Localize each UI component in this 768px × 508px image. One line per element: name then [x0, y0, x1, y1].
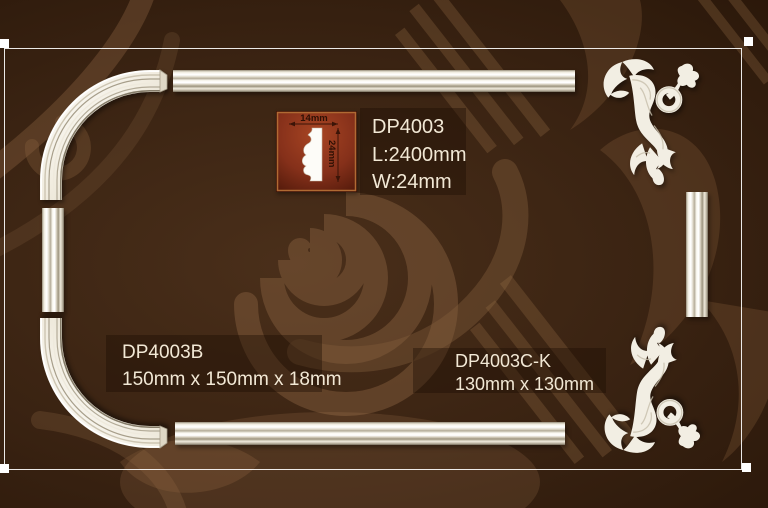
left-molding-strip [42, 208, 64, 312]
corner-ornament-bottom-right [594, 324, 720, 458]
product-code: DP4003 [372, 114, 466, 142]
product-length: L:2400mm [372, 142, 466, 170]
right-molding-strip [686, 192, 708, 317]
profile-cross-section-inset: 14mm 24mm [276, 111, 357, 192]
crop-handle-top-right [744, 37, 753, 46]
product-info-molding: DP4003 L:2400mm W:24mm [360, 108, 466, 195]
product-size: 150mm x 150mm x 18mm [122, 367, 322, 394]
product-info-corner-ornament: DP4003C-K 130mm x 130mm [413, 348, 606, 393]
corner-molding-top-left [0, 0, 170, 210]
product-width: W:24mm [372, 169, 466, 197]
inset-width-label: 14mm [300, 113, 327, 124]
corner-ornament-top-right [593, 54, 719, 188]
crop-handle-bottom-right [742, 463, 751, 472]
product-code: DP4003C-K [455, 350, 606, 373]
product-code: DP4003B [122, 340, 322, 367]
product-size: 130mm x 130mm [455, 373, 606, 396]
catalog-page: 14mm 24mm DP4003 L:2400mm W:24mm DP4003B… [0, 0, 768, 508]
product-info-corner-molding: DP4003B 150mm x 150mm x 18mm [106, 335, 322, 392]
inset-height-label: 24mm [326, 140, 337, 167]
bottom-molding-strip [175, 422, 565, 445]
top-molding-strip [173, 70, 575, 92]
